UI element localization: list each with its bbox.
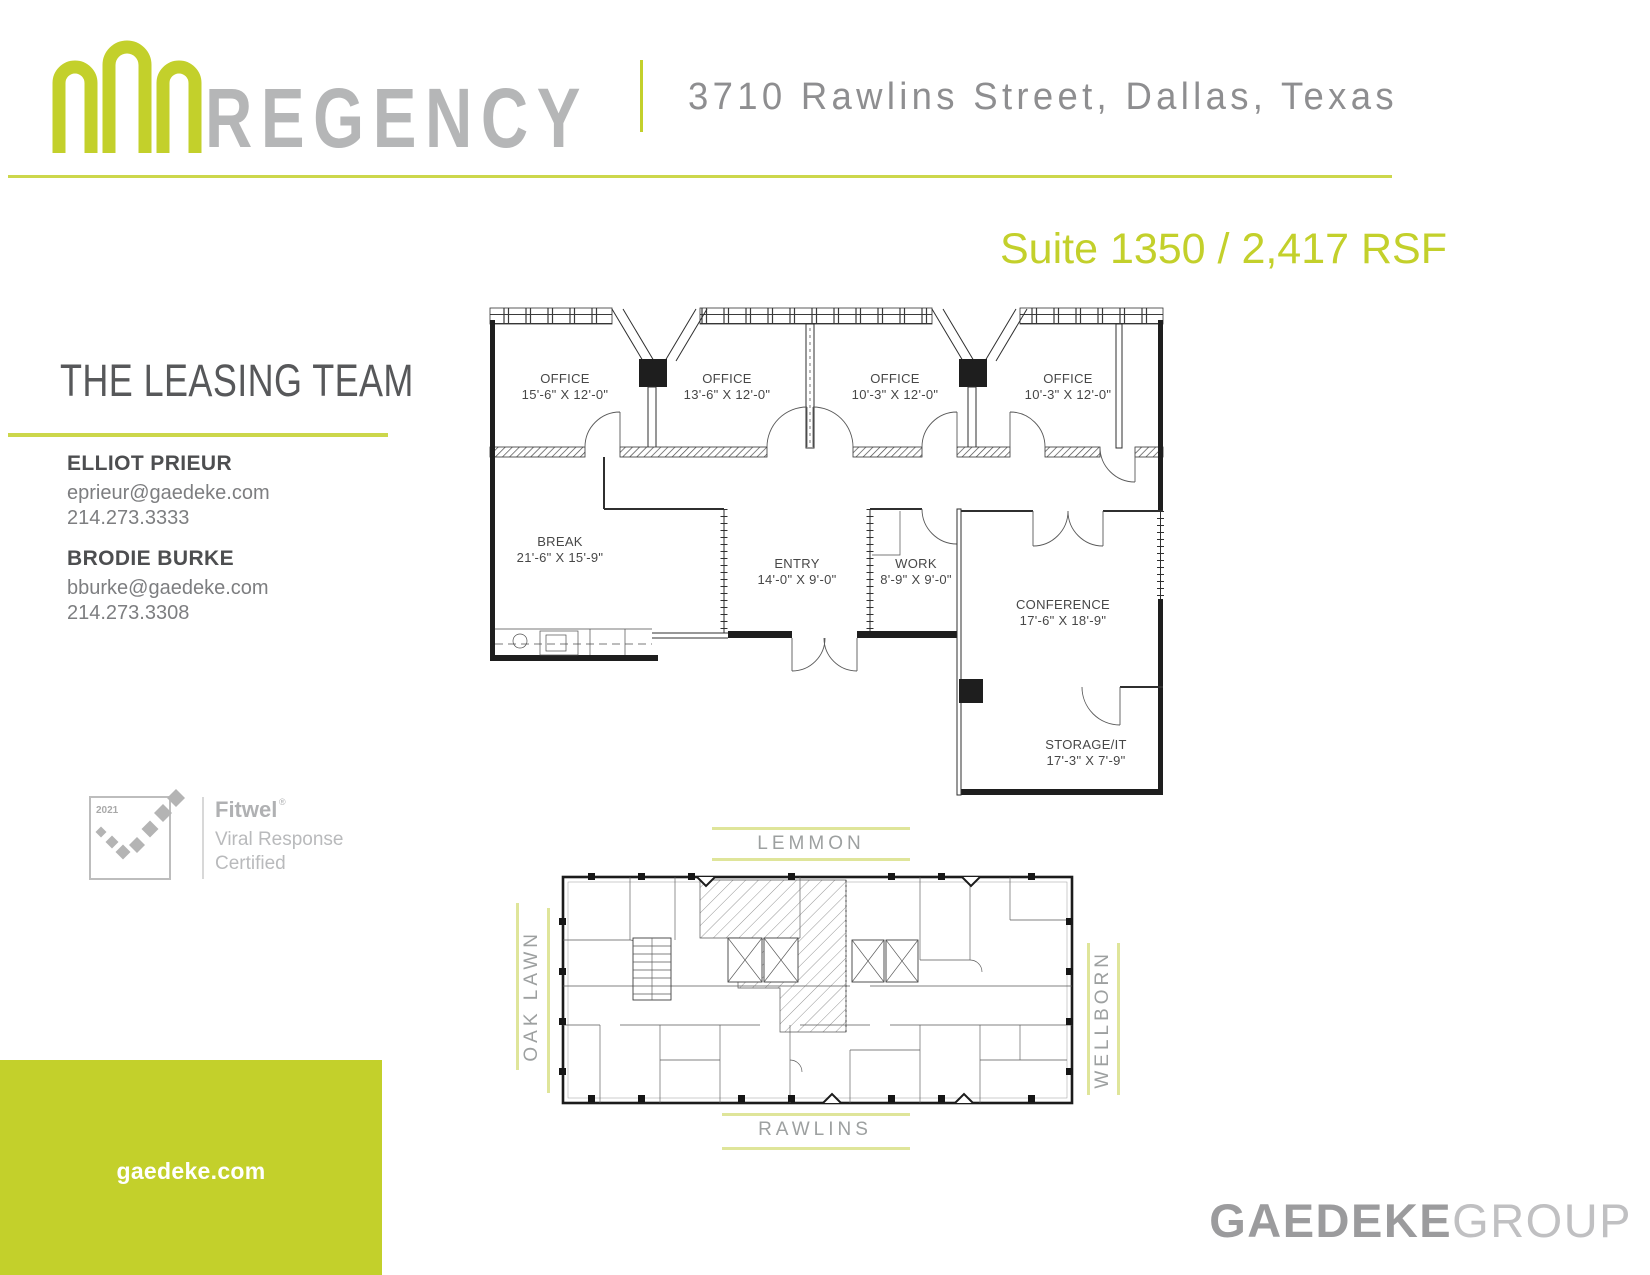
building-key-plan (500, 820, 1140, 1150)
header-rule (8, 175, 1392, 178)
street-line (722, 1147, 910, 1150)
gaedeke-group-wordmark: GAEDEKEGROUP (1209, 1193, 1632, 1248)
contact-name: BRODIE BURKE (67, 547, 397, 571)
leasing-team-heading: THE LEASING TEAM (60, 355, 414, 407)
property-address: 3710 Rawlins Street, Dallas, Texas (688, 76, 1398, 119)
contact-email[interactable]: bburke@gaedeke.com (67, 576, 397, 601)
website-link[interactable]: gaedeke.com (116, 1158, 265, 1185)
room-label-break: BREAK21'-6" X 15'-9" (517, 534, 604, 566)
contact-name: ELLIOT PRIEUR (67, 452, 397, 476)
street-line (516, 903, 519, 1070)
room-label-entry: ENTRY14'-0" X 9'-0" (757, 556, 836, 588)
contact-phone: 214.273.3308 (67, 601, 397, 626)
street-line (712, 858, 910, 861)
fitwel-reg-mark: ® (279, 797, 286, 807)
contact-card: ELLIOT PRIEUR eprieur@gaedeke.com 214.27… (67, 452, 397, 531)
street-line (712, 827, 910, 830)
contact-card: BRODIE BURKE bburke@gaedeke.com 214.273.… (67, 547, 397, 626)
street-label-oak-lawn: OAK LAWN (521, 930, 543, 1062)
room-label-conference: CONFERENCE17'-6" X 18'-9" (1016, 597, 1110, 629)
brand-bold: GAEDEKE (1209, 1194, 1452, 1247)
leasing-flyer-page: REGENCY 3710 Rawlins Street, Dallas, Tex… (0, 0, 1650, 1275)
street-line (1087, 943, 1090, 1095)
street-label-rawlins: RAWLINS (758, 1119, 872, 1141)
street-label-wellborn: WELLBORN (1092, 950, 1114, 1089)
brand-light: GROUP (1452, 1194, 1632, 1247)
room-label-office-3: OFFICE10'-3" X 12'-0" (852, 371, 939, 403)
room-label-office-4: OFFICE10'-3" X 12'-0" (1025, 371, 1112, 403)
fitwel-brand: Fitwel (215, 797, 277, 822)
room-label-office-1: OFFICE15'-6" X 12'-0" (522, 371, 609, 403)
street-line (722, 1113, 910, 1116)
room-label-work: WORK8'-9" X 9'-0" (880, 556, 952, 588)
fitwel-certification-badge-icon: 2021 Fitwel ® Viral Response Certified (85, 785, 385, 887)
contact-phone: 214.273.3333 (67, 506, 397, 531)
street-label-lemmon: LEMMON (757, 833, 864, 855)
street-line (1117, 943, 1120, 1095)
contact-email[interactable]: eprieur@gaedeke.com (67, 481, 397, 506)
room-label-office-2: OFFICE13'-6" X 12'-0" (684, 371, 771, 403)
fitwel-year: 2021 (96, 805, 119, 816)
street-line (547, 908, 550, 1093)
brand-wordmark: REGENCY (205, 70, 589, 167)
suite-title: Suite 1350 / 2,417 RSF (1000, 225, 1447, 274)
fitwel-check-diamonds (96, 789, 186, 860)
fitwel-cert-line2: Certified (215, 853, 286, 874)
fitwel-cert-line1: Viral Response (215, 829, 344, 850)
leasing-team-rule (8, 433, 388, 437)
header-divider (640, 60, 643, 132)
room-label-storage-it: STORAGE/IT17'-3" X 7'-9" (1045, 737, 1127, 769)
